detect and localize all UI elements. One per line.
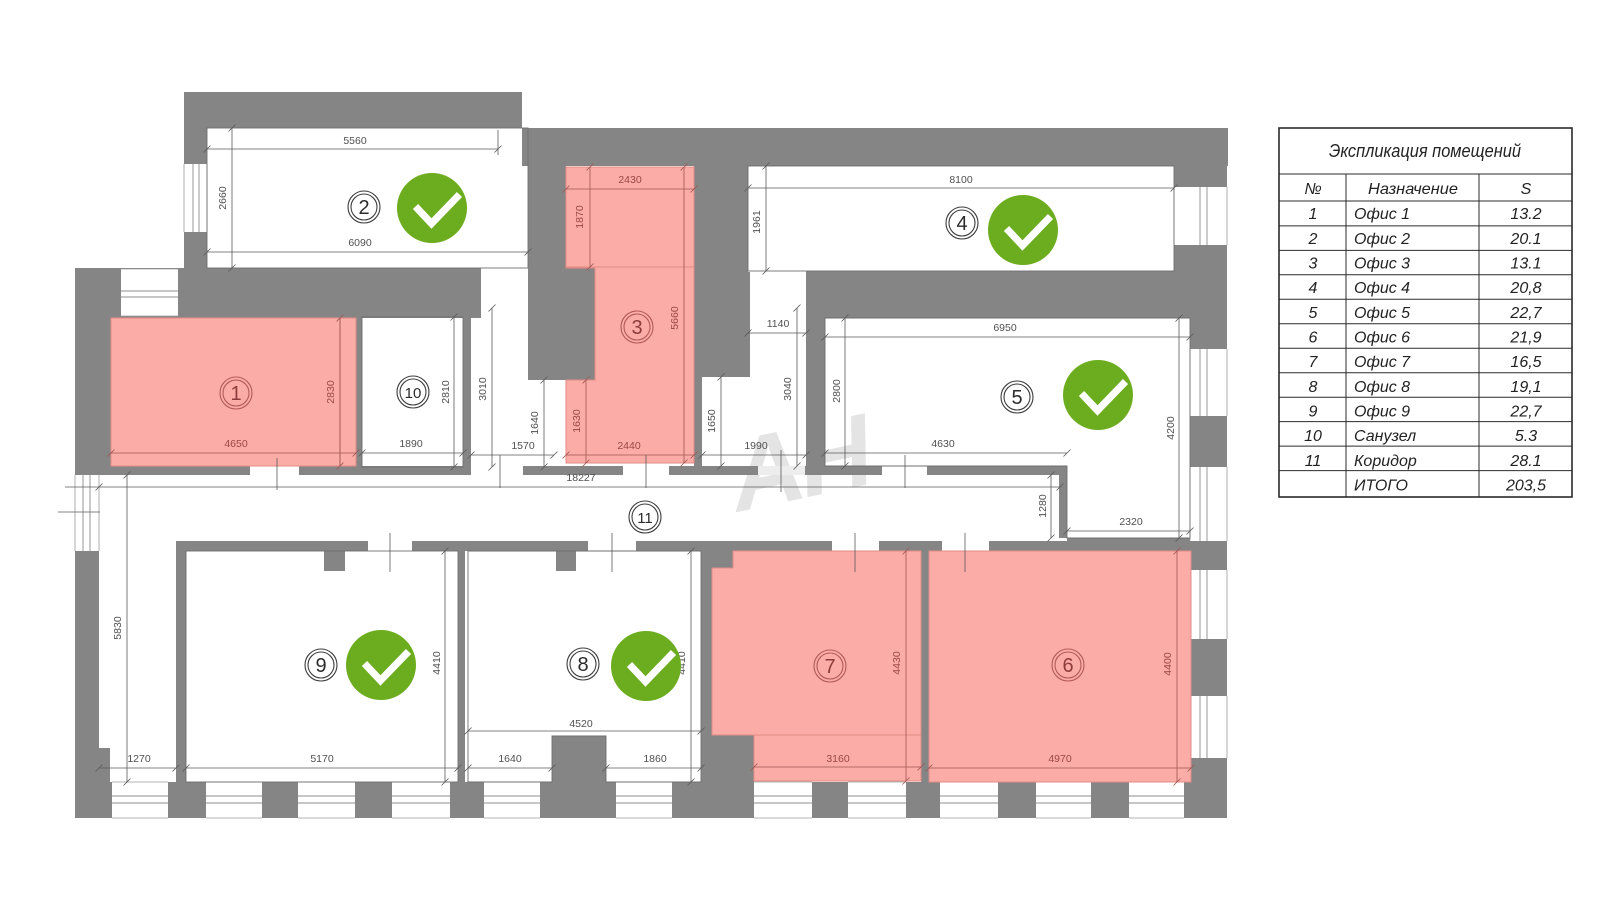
svg-text:Офис 2: Офис 2 — [1354, 231, 1410, 248]
svg-text:2660: 2660 — [217, 186, 229, 210]
svg-text:5830: 5830 — [112, 616, 124, 640]
svg-text:10: 10 — [1304, 428, 1322, 445]
svg-text:1640: 1640 — [498, 753, 522, 765]
svg-text:Офис 9: Офис 9 — [1354, 404, 1410, 421]
svg-text:4410: 4410 — [431, 651, 443, 675]
svg-text:21,9: 21,9 — [1509, 330, 1541, 347]
svg-text:Офис 7: Офис 7 — [1354, 354, 1411, 371]
svg-text:4: 4 — [1309, 280, 1318, 297]
svg-text:1890: 1890 — [399, 438, 423, 450]
svg-text:3160: 3160 — [826, 753, 850, 765]
svg-text:5: 5 — [1309, 305, 1318, 322]
svg-text:5660: 5660 — [669, 306, 681, 330]
svg-text:1870: 1870 — [574, 205, 586, 229]
svg-text:2430: 2430 — [618, 174, 642, 186]
svg-text:203,5: 203,5 — [1505, 478, 1546, 495]
svg-text:Офис 5: Офис 5 — [1354, 305, 1410, 322]
svg-text:10: 10 — [405, 385, 422, 402]
svg-text:Назначение: Назначение — [1368, 181, 1458, 198]
svg-text:2320: 2320 — [1119, 516, 1143, 528]
svg-text:5560: 5560 — [343, 135, 367, 147]
svg-text:7: 7 — [1309, 354, 1319, 371]
svg-text:4430: 4430 — [891, 651, 903, 675]
svg-text:4520: 4520 — [569, 718, 593, 730]
svg-text:1: 1 — [230, 383, 241, 405]
svg-text:1640: 1640 — [529, 411, 541, 435]
svg-text:13.1: 13.1 — [1510, 256, 1541, 273]
svg-text:Офис 4: Офис 4 — [1354, 280, 1410, 297]
svg-text:1280: 1280 — [1037, 494, 1049, 518]
svg-text:19,1: 19,1 — [1510, 379, 1541, 396]
svg-text:5170: 5170 — [310, 753, 334, 765]
svg-text:S: S — [1521, 181, 1532, 198]
svg-text:28.1: 28.1 — [1509, 453, 1541, 470]
svg-text:4400: 4400 — [1162, 652, 1174, 676]
svg-text:1630: 1630 — [571, 409, 583, 433]
svg-text:7: 7 — [824, 656, 835, 678]
svg-text:6950: 6950 — [993, 322, 1017, 334]
svg-text:6: 6 — [1309, 330, 1318, 347]
svg-text:18227: 18227 — [566, 472, 595, 484]
svg-text:13.2: 13.2 — [1510, 206, 1541, 223]
svg-text:4970: 4970 — [1048, 753, 1072, 765]
svg-text:9: 9 — [1309, 404, 1318, 421]
svg-text:1: 1 — [1309, 206, 1318, 223]
svg-text:20.1: 20.1 — [1509, 231, 1541, 248]
svg-text:2440: 2440 — [617, 440, 641, 452]
svg-text:1140: 1140 — [767, 318, 790, 330]
svg-text:1270: 1270 — [127, 753, 151, 765]
svg-text:Офис 8: Офис 8 — [1354, 379, 1410, 396]
svg-text:3: 3 — [1309, 256, 1318, 273]
svg-text:11: 11 — [1305, 453, 1322, 470]
svg-text:2: 2 — [1308, 231, 1318, 248]
svg-text:Экспликация помещений: Экспликация помещений — [1329, 140, 1521, 161]
svg-text:1650: 1650 — [706, 409, 718, 433]
svg-text:8: 8 — [577, 654, 588, 676]
svg-text:4630: 4630 — [931, 438, 955, 450]
svg-text:Санузел: Санузел — [1354, 428, 1416, 445]
svg-text:11: 11 — [637, 510, 653, 527]
svg-text:3: 3 — [631, 317, 642, 339]
svg-text:Офис 3: Офис 3 — [1354, 256, 1410, 273]
svg-text:4200: 4200 — [1165, 416, 1177, 440]
svg-text:22,7: 22,7 — [1509, 305, 1542, 322]
svg-text:8100: 8100 — [949, 174, 973, 186]
svg-text:Коридор: Коридор — [1354, 453, 1417, 470]
svg-text:6090: 6090 — [348, 237, 372, 249]
svg-text:4: 4 — [956, 213, 967, 235]
svg-text:2830: 2830 — [325, 380, 337, 404]
svg-text:Офис 6: Офис 6 — [1354, 330, 1410, 347]
svg-text:20,8: 20,8 — [1509, 280, 1541, 297]
svg-text:16,5: 16,5 — [1510, 354, 1541, 371]
svg-text:1961: 1961 — [751, 210, 763, 234]
svg-text:6: 6 — [1062, 655, 1073, 677]
svg-text:3040: 3040 — [782, 377, 794, 401]
svg-text:ИТОГО: ИТОГО — [1354, 478, 1408, 495]
svg-text:1570: 1570 — [511, 440, 535, 452]
svg-text:2800: 2800 — [831, 379, 843, 403]
svg-text:5: 5 — [1011, 387, 1022, 409]
svg-text:4650: 4650 — [224, 438, 248, 450]
svg-text:2810: 2810 — [440, 380, 452, 404]
svg-text:2: 2 — [358, 197, 369, 219]
svg-text:5.3: 5.3 — [1515, 428, 1537, 445]
svg-text:Офис 1: Офис 1 — [1354, 206, 1410, 223]
svg-text:3010: 3010 — [477, 377, 489, 401]
svg-text:1990: 1990 — [744, 440, 768, 452]
svg-text:1860: 1860 — [643, 753, 667, 765]
svg-text:22,7: 22,7 — [1509, 404, 1542, 421]
svg-text:№: № — [1304, 181, 1321, 198]
svg-text:9: 9 — [315, 655, 326, 677]
svg-text:8: 8 — [1309, 379, 1318, 396]
